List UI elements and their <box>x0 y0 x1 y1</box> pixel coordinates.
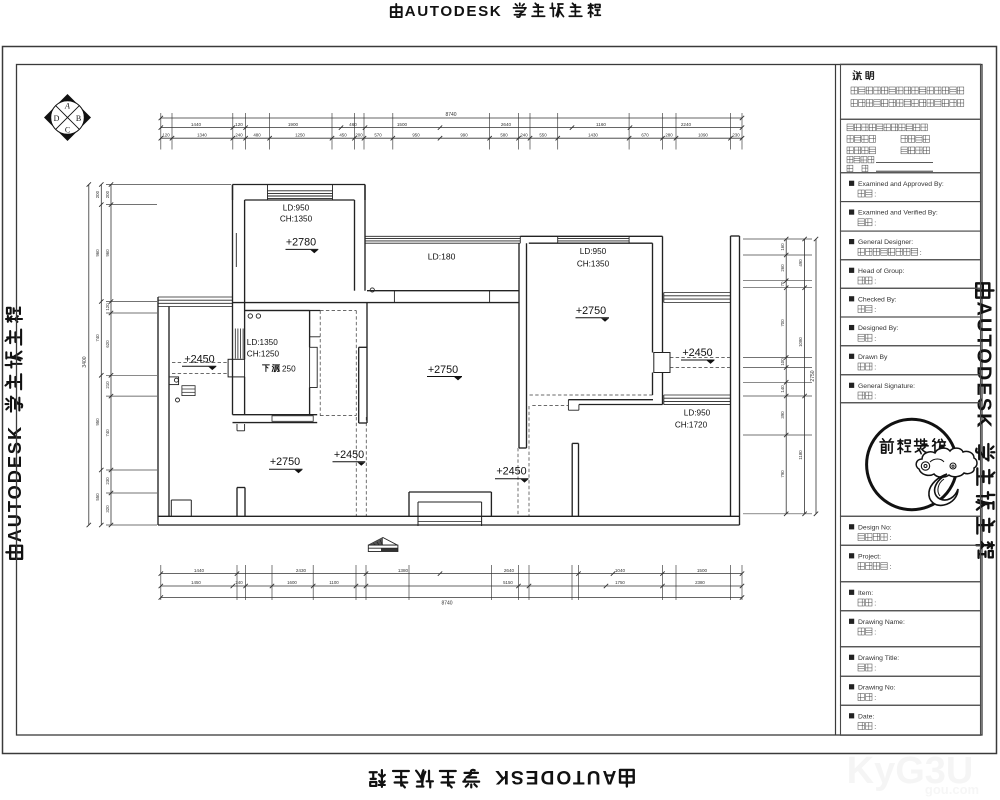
svg-text:790: 790 <box>780 470 785 478</box>
svg-text:1160: 1160 <box>596 122 606 127</box>
svg-text:1090: 1090 <box>698 132 708 137</box>
svg-text:+2750: +2750 <box>428 364 458 376</box>
svg-text:Drawing No:: Drawing No: <box>858 684 896 691</box>
svg-text:200: 200 <box>95 190 100 198</box>
svg-text:8740: 8740 <box>445 112 456 118</box>
svg-text:AUTODESK: AUTODESK <box>4 425 25 542</box>
svg-text:LD:950: LD:950 <box>283 204 310 213</box>
svg-text:D: D <box>54 114 60 123</box>
svg-text:LD:950: LD:950 <box>684 409 711 418</box>
svg-text:+2450: +2450 <box>184 353 214 365</box>
svg-text:230: 230 <box>105 477 110 485</box>
svg-text:CH:1350: CH:1350 <box>280 215 313 224</box>
svg-text::: : <box>874 307 876 314</box>
svg-text:580: 580 <box>500 132 508 137</box>
svg-text::: : <box>874 394 876 401</box>
svg-text:+2750: +2750 <box>576 305 606 317</box>
svg-text:250: 250 <box>282 364 296 373</box>
svg-text:LD:180: LD:180 <box>428 252 456 262</box>
svg-text:100: 100 <box>780 358 785 366</box>
svg-text:550: 550 <box>95 493 100 501</box>
svg-text:1250: 1250 <box>295 132 305 137</box>
svg-text:550: 550 <box>539 132 547 137</box>
svg-text:490: 490 <box>798 259 803 267</box>
svg-text:General Signature:: General Signature: <box>858 383 915 390</box>
svg-text:gou.com: gou.com <box>925 782 979 797</box>
svg-text:240: 240 <box>235 132 243 137</box>
svg-text:Date:: Date: <box>858 713 874 720</box>
svg-text:2750: 2750 <box>810 370 816 381</box>
svg-text:620: 620 <box>105 340 110 348</box>
svg-text::: : <box>874 666 876 673</box>
svg-text:5150: 5150 <box>503 580 513 585</box>
svg-text:160: 160 <box>780 243 785 251</box>
svg-text:230: 230 <box>732 132 740 137</box>
svg-text:CH:1720: CH:1720 <box>675 421 708 430</box>
svg-text:Examined and Approved By:: Examined and Approved By: <box>858 181 944 188</box>
svg-text:960: 960 <box>95 249 100 257</box>
svg-text:240: 240 <box>520 132 528 137</box>
svg-text:B: B <box>76 114 81 123</box>
svg-text:1430: 1430 <box>588 132 598 137</box>
svg-text::: : <box>874 695 876 702</box>
svg-text:950: 950 <box>412 132 420 137</box>
svg-text:A: A <box>64 102 70 111</box>
svg-text:1100: 1100 <box>329 580 339 585</box>
svg-text:+2450: +2450 <box>682 347 712 359</box>
svg-text:1500: 1500 <box>697 568 708 573</box>
svg-text:740: 740 <box>105 429 110 437</box>
svg-text:240: 240 <box>235 580 243 585</box>
svg-text:1900: 1900 <box>288 122 299 127</box>
svg-text::: : <box>874 336 876 343</box>
svg-text::: : <box>874 365 876 372</box>
svg-text:+2750: +2750 <box>270 456 300 468</box>
svg-text:Project:: Project: <box>858 553 881 560</box>
svg-text:740: 740 <box>95 334 100 342</box>
svg-text:1750: 1750 <box>615 580 625 585</box>
svg-text:2240: 2240 <box>681 122 692 127</box>
svg-text:260: 260 <box>780 264 785 272</box>
svg-text:1040: 1040 <box>615 568 626 573</box>
svg-text:450: 450 <box>339 132 347 137</box>
svg-text::: : <box>920 250 922 257</box>
svg-text:2640: 2640 <box>501 122 512 127</box>
svg-text::: : <box>874 724 876 731</box>
svg-text:1340: 1340 <box>197 132 207 137</box>
svg-text:AUTODESK: AUTODESK <box>405 3 503 20</box>
svg-text:3400: 3400 <box>82 356 88 367</box>
svg-text:950: 950 <box>95 418 100 426</box>
svg-text:120: 120 <box>162 132 170 137</box>
svg-text:LD:950: LD:950 <box>580 247 607 256</box>
svg-text:1180: 1180 <box>798 450 803 460</box>
svg-text:+2450: +2450 <box>496 466 526 478</box>
svg-text::: : <box>874 279 876 286</box>
svg-text:Drawn By: Drawn By <box>858 354 888 361</box>
svg-text:LD:1350: LD:1350 <box>247 338 278 347</box>
svg-text:2430: 2430 <box>296 568 307 573</box>
svg-text:570: 570 <box>374 132 382 137</box>
svg-text:+2780: +2780 <box>286 237 316 249</box>
svg-text:140: 140 <box>780 385 785 393</box>
svg-text:2640: 2640 <box>504 568 515 573</box>
svg-text:General Designer:: General Designer: <box>858 239 913 246</box>
svg-text::: : <box>874 192 876 199</box>
svg-text:Checked By:: Checked By: <box>858 296 897 303</box>
svg-text:1080: 1080 <box>798 337 803 347</box>
svg-text::: : <box>874 630 876 637</box>
svg-text:1380: 1380 <box>398 568 409 573</box>
svg-text:120: 120 <box>235 122 243 127</box>
svg-text:990: 990 <box>460 132 468 137</box>
svg-text:210: 210 <box>105 381 110 389</box>
svg-text:280: 280 <box>665 132 673 137</box>
svg-text:+2450: +2450 <box>334 449 364 461</box>
svg-text:C: C <box>65 126 70 135</box>
svg-text:Examined and Verified By:: Examined and Verified By: <box>858 210 938 217</box>
svg-text:70: 70 <box>780 281 785 286</box>
svg-text:Designed By:: Designed By: <box>858 325 899 332</box>
svg-text:1440: 1440 <box>191 122 202 127</box>
svg-text:CH:1250: CH:1250 <box>247 350 280 359</box>
svg-text:2380: 2380 <box>695 580 705 585</box>
svg-text:Head of Group:: Head of Group: <box>858 268 905 275</box>
svg-text:AUTODESK: AUTODESK <box>972 301 994 429</box>
svg-text:390: 390 <box>780 411 785 419</box>
svg-text:1600: 1600 <box>287 580 297 585</box>
svg-text:AUTODESK: AUTODESK <box>493 766 616 787</box>
svg-text:480: 480 <box>253 132 261 137</box>
svg-text:460: 460 <box>349 122 357 127</box>
svg-text:120: 120 <box>105 303 110 311</box>
svg-text::: : <box>874 220 876 227</box>
svg-text:960: 960 <box>105 249 110 257</box>
svg-text:1440: 1440 <box>194 568 205 573</box>
svg-text:320: 320 <box>105 505 110 513</box>
svg-text:Drawing Title:: Drawing Title: <box>858 655 899 662</box>
svg-text:Item:: Item: <box>858 590 873 597</box>
svg-text::: : <box>889 564 891 571</box>
svg-text:1450: 1450 <box>191 580 201 585</box>
svg-text:Drawing Name:: Drawing Name: <box>858 619 905 626</box>
svg-text:200: 200 <box>105 190 110 198</box>
svg-text::: : <box>889 535 891 542</box>
svg-text:200: 200 <box>355 132 363 137</box>
svg-text:670: 670 <box>641 132 649 137</box>
svg-text:8740: 8740 <box>441 601 452 607</box>
svg-text:Design No:: Design No: <box>858 524 892 531</box>
svg-text::: : <box>874 601 876 608</box>
svg-text:700: 700 <box>780 319 785 327</box>
svg-text:1500: 1500 <box>397 122 408 127</box>
svg-text:CH:1350: CH:1350 <box>577 260 610 269</box>
